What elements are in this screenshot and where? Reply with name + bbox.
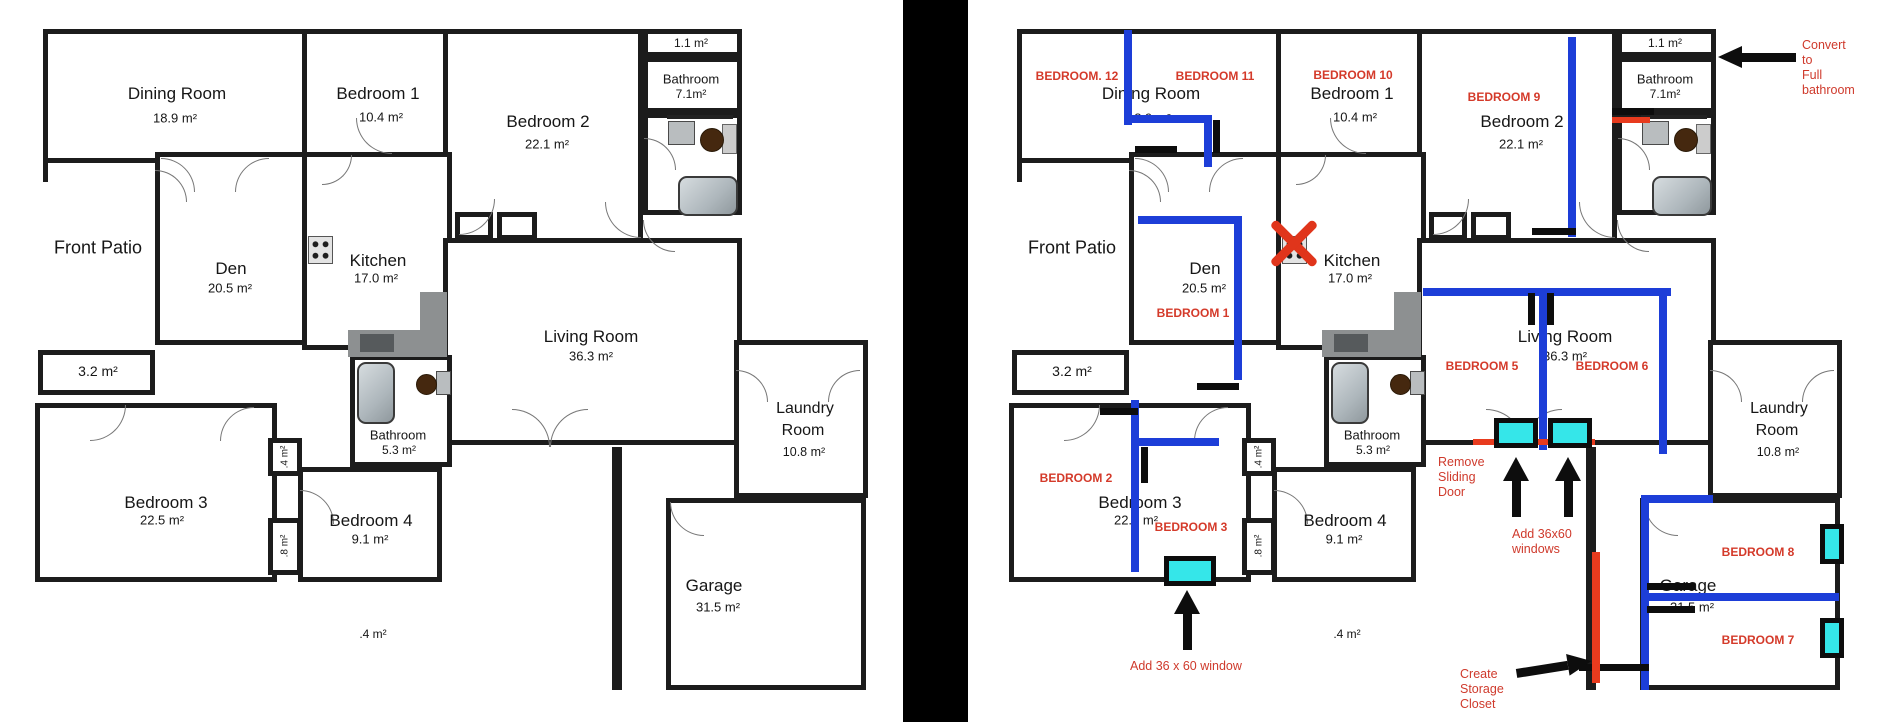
room-dining-room-name: Dining Room (1102, 84, 1200, 104)
new-wall-blue (1539, 288, 1547, 450)
wall-segment (612, 447, 622, 690)
sink-icon (668, 121, 695, 145)
room-closet-8-area: .8 m² (1254, 535, 1265, 558)
toilet-icon (1674, 128, 1698, 152)
remove-mark-red (1612, 117, 1650, 123)
new-wall-blue (1131, 438, 1219, 446)
room-laundry-room (1708, 340, 1842, 498)
note-line: windows (1512, 542, 1572, 557)
room-laundry-room-area: 10.8 m² (1757, 445, 1799, 459)
room-dining-room-name: Dining Room (128, 84, 226, 104)
note-convert-full-bathroom: Convert toFullbathroom (1802, 38, 1856, 98)
bathtub-icon (1331, 362, 1369, 424)
toilet-tank-icon (722, 124, 737, 154)
remove-mark-red (1592, 552, 1600, 683)
room-living-room-area: 36.3 m² (569, 349, 613, 364)
room-dining-room-area: 18.9 m² (153, 111, 197, 126)
kitchen-sink-icon (1334, 334, 1368, 352)
new-wall-blue (1568, 37, 1576, 237)
kitchen-counter (420, 292, 447, 357)
room-closet-top-area: 1.1 m² (1648, 36, 1682, 50)
arrow-head (1566, 650, 1593, 675)
room-bedroom2-closet-b (497, 212, 537, 240)
room-living-room-name: Living Room (544, 327, 639, 347)
wall-mark-black (1528, 293, 1535, 325)
room-bedroom-2-area: 22.1 m² (525, 137, 569, 152)
room-laundry-room (734, 340, 868, 498)
room-closet-32-area: 3.2 m² (78, 363, 118, 379)
wall-mark-black (1532, 228, 1576, 235)
added-window-icon (1494, 418, 1538, 448)
room-bathroom-53-name: Bathroom (370, 428, 426, 443)
label-bedroom-9: BEDROOM 9 (1468, 90, 1541, 104)
added-window-icon (1820, 618, 1844, 658)
wall-mark-black (1197, 383, 1239, 390)
arrow-head (1718, 46, 1742, 68)
room-bathroom-53-area: 5.3 m² (382, 443, 416, 457)
arrow-shaft (1516, 660, 1569, 677)
bathtub-icon (678, 176, 738, 216)
sink-icon (1642, 121, 1669, 145)
room-closet-4-area: .4 m² (280, 446, 291, 469)
room-laundry-room-name2: Room (1756, 422, 1799, 440)
room-bedroom-2-area: 22.1 m² (1499, 137, 1543, 152)
room-bedroom-3-name: Bedroom 3 (1098, 493, 1181, 513)
room-den-area: 20.5 m² (1182, 281, 1226, 296)
room-bedroom-1-name: Bedroom 1 (336, 84, 419, 104)
sink-icon (1410, 371, 1425, 395)
note-line: Convert to (1802, 38, 1856, 68)
new-wall-blue (1138, 216, 1242, 224)
label-bedroom-2: BEDROOM 2 (1040, 471, 1113, 485)
room-den-area: 20.5 m² (208, 281, 252, 296)
label-bedroom-7: BEDROOM 7 (1722, 633, 1795, 647)
room-bedroom-1-name: Bedroom 1 (1310, 84, 1393, 104)
room-laundry-room-name: Laundry (776, 400, 834, 418)
arrow-right-icon (1515, 650, 1594, 684)
note-line: Add 36 x 60 window (1130, 659, 1242, 674)
wall-segment (1017, 152, 1022, 182)
note-line: Closet (1460, 697, 1504, 712)
arrow-shaft (1512, 481, 1521, 517)
stove-icon (308, 236, 333, 264)
arrow-left-icon (1718, 46, 1796, 68)
room-closet-4-area: .4 m² (1254, 446, 1265, 469)
wall-segment (43, 152, 48, 182)
new-wall-blue (1659, 288, 1667, 454)
label-bedroom-10: BEDROOM 10 (1313, 68, 1392, 82)
kitchen-sink-icon (360, 334, 394, 352)
new-wall-blue (1641, 495, 1713, 503)
note-add-36x60-windows: Add 36x60windows (1512, 527, 1572, 557)
room-bathroom-top-area: 7.1m² (676, 87, 707, 101)
room-bedroom-4-area: 9.1 m² (1326, 532, 1363, 547)
label-walkway-area: .4 m² (1333, 627, 1360, 641)
toilet-icon (1390, 374, 1411, 395)
room-kitchen-name: Kitchen (1324, 251, 1381, 271)
wall-mark-black (1213, 120, 1220, 153)
room-bedroom-4-area: 9.1 m² (352, 532, 389, 547)
wall-mark-black (1547, 293, 1554, 325)
added-window-icon (1548, 418, 1592, 448)
image-divider (903, 0, 968, 722)
room-laundry-room-name: Laundry (1750, 400, 1808, 418)
room-bedroom-1-area: 10.4 m² (359, 110, 403, 125)
new-wall-blue (1131, 400, 1139, 572)
note-line: Remove (1438, 455, 1485, 470)
added-window-icon (1820, 524, 1844, 564)
label-bedroom-12: BEDROOM. 12 (1036, 69, 1119, 83)
wall-mark-black (1135, 146, 1177, 153)
room-bedroom-2-name: Bedroom 2 (506, 112, 589, 132)
label-bedroom-6: BEDROOM 6 (1576, 359, 1649, 373)
new-wall-blue (1641, 593, 1839, 601)
label-walkway-area: .4 m² (359, 627, 386, 641)
arrow-shaft (1183, 614, 1192, 650)
floor-plan-comparison: { "colors":{"wall":"#1c1c1c","new_wall_b… (0, 0, 1878, 722)
room-bathroom-top-area: 7.1m² (1650, 87, 1681, 101)
room-den-name: Den (215, 259, 246, 279)
room-closet-top-area: 1.1 m² (674, 36, 708, 50)
new-wall-blue (1234, 216, 1242, 380)
room-bathroom-top-name: Bathroom (663, 72, 719, 87)
label-bedroom-8: BEDROOM 8 (1722, 545, 1795, 559)
note-add-36x60-window: Add 36 x 60 window (1130, 659, 1242, 674)
room-bedroom-3-area: 22.5 m² (140, 513, 184, 528)
room-bedroom-4-name: Bedroom 4 (329, 511, 412, 531)
arrow-shaft (1564, 481, 1573, 517)
floor-plan-original: Dining Room18.9 m²Bedroom 110.4 m²Bedroo… (30, 18, 882, 718)
wall-mark-black (1647, 583, 1695, 590)
room-garage-name: Garage (686, 576, 743, 596)
room-bathroom-53-name: Bathroom (1344, 428, 1400, 443)
room-den-name: Den (1189, 259, 1220, 279)
kitchen-counter (1394, 292, 1421, 357)
room-bedroom2-closet-b (1471, 212, 1511, 240)
room-laundry-room-area: 10.8 m² (783, 445, 825, 459)
bathtub-icon (357, 362, 395, 424)
note-line: Storage (1460, 682, 1504, 697)
bathroom-vanity (1641, 115, 1707, 119)
bathtub-icon (1652, 176, 1712, 216)
wall-mark-black (1141, 447, 1148, 483)
label-bedroom-5: BEDROOM 5 (1446, 359, 1519, 373)
room-bathroom-53-area: 5.3 m² (1356, 443, 1390, 457)
label-bedroom-3: BEDROOM 3 (1155, 520, 1228, 534)
wall-mark-black (1647, 606, 1695, 613)
arrow-shaft (1742, 53, 1796, 62)
arrow-up-icon (1555, 457, 1581, 517)
room-kitchen-area: 17.0 m² (1328, 271, 1372, 286)
note-remove-sliding-door: RemoveSlidingDoor (1438, 455, 1485, 500)
room-bedroom-3-name: Bedroom 3 (124, 493, 207, 513)
room-laundry-room-name2: Room (782, 422, 825, 440)
floor-plan-annotated: Dining Room18.9 m²Bedroom 110.4 m²Bedroo… (1004, 18, 1856, 718)
arrow-head (1503, 457, 1529, 481)
room-kitchen-name: Kitchen (350, 251, 407, 271)
room-bathroom-top-name: Bathroom (1637, 72, 1693, 87)
arrow-head (1555, 457, 1581, 481)
room-closet-32-area: 3.2 m² (1052, 363, 1092, 379)
arrow-up-icon (1503, 457, 1529, 517)
bathroom-vanity (667, 115, 733, 119)
note-line: Add 36x60 (1512, 527, 1572, 542)
toilet-tank-icon (1696, 124, 1711, 154)
note-line: bathroom (1802, 83, 1856, 98)
note-line: Full (1802, 68, 1856, 83)
arrow-head (1174, 590, 1200, 614)
new-wall-blue (1128, 115, 1208, 123)
note-create-storage-closet: CreateStorageCloset (1460, 667, 1504, 712)
label-front-patio: Front Patio (54, 238, 142, 259)
room-bedroom-1-area: 10.4 m² (1333, 110, 1377, 125)
toilet-icon (700, 128, 724, 152)
wall-mark-black (1612, 108, 1654, 115)
label-bedroom-1: BEDROOM 1 (1157, 306, 1230, 320)
arrow-up-icon (1174, 590, 1200, 650)
note-line: Create (1460, 667, 1504, 682)
wall-mark-black (1100, 408, 1138, 415)
note-line: Door (1438, 485, 1485, 500)
room-bedroom-4-name: Bedroom 4 (1303, 511, 1386, 531)
toilet-icon (416, 374, 437, 395)
room-kitchen-area: 17.0 m² (354, 271, 398, 286)
sink-icon (436, 371, 451, 395)
new-wall-blue (1124, 30, 1132, 125)
room-living-room-name: Living Room (1518, 327, 1613, 347)
label-bedroom-11: BEDROOM 11 (1176, 69, 1255, 83)
label-front-patio: Front Patio (1028, 238, 1116, 259)
new-wall-blue (1204, 115, 1212, 167)
note-line: Sliding (1438, 470, 1485, 485)
room-garage-area: 31.5 m² (696, 600, 740, 615)
room-closet-8-area: .8 m² (280, 535, 291, 558)
added-window-icon (1164, 556, 1216, 586)
room-bedroom-2-name: Bedroom 2 (1480, 112, 1563, 132)
